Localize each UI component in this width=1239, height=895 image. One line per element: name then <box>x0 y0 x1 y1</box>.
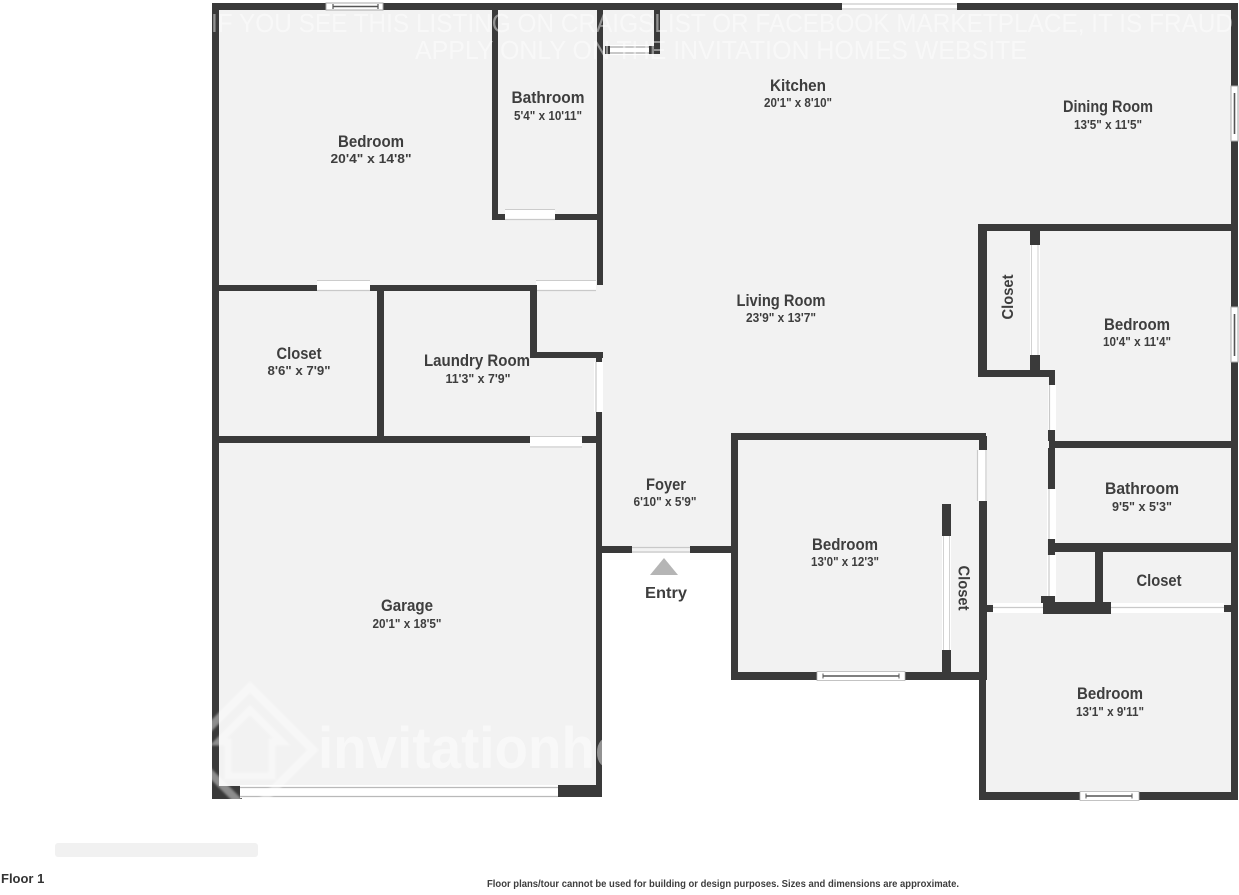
svg-text:13'1" x 9'11": 13'1" x 9'11" <box>1076 704 1144 719</box>
svg-text:20'1" x 8'10": 20'1" x 8'10" <box>764 95 832 110</box>
svg-text:APPLY ONLY ON THE INVITATION H: APPLY ONLY ON THE INVITATION HOMES WEBSI… <box>415 35 1027 65</box>
svg-text:Closet: Closet <box>277 344 322 363</box>
svg-text:Closet: Closet <box>955 566 972 612</box>
svg-text:Bedroom: Bedroom <box>1104 315 1170 334</box>
svg-text:IF YOU SEE THIS LISTING ON CRA: IF YOU SEE THIS LISTING ON CRAIGSLIST OR… <box>211 8 1233 38</box>
svg-text:13'0" x 12'3": 13'0" x 12'3" <box>811 554 879 569</box>
svg-text:Bathroom: Bathroom <box>512 88 585 107</box>
svg-text:Bedroom: Bedroom <box>1077 684 1143 703</box>
svg-text:Floor plans/tour cannot be use: Floor plans/tour cannot be used for buil… <box>487 879 959 890</box>
svg-text:20'1" x 18'5": 20'1" x 18'5" <box>373 616 442 631</box>
svg-text:Kitchen: Kitchen <box>770 76 826 95</box>
svg-text:Closet: Closet <box>1000 274 1017 320</box>
svg-text:23'9" x 13'7": 23'9" x 13'7" <box>746 310 816 325</box>
svg-text:Floor 1: Floor 1 <box>1 871 44 886</box>
svg-text:Bedroom: Bedroom <box>812 535 878 554</box>
svg-text:Closet: Closet <box>1137 571 1182 590</box>
svg-text:Bedroom: Bedroom <box>338 132 404 151</box>
svg-text:5'4" x 10'11": 5'4" x 10'11" <box>514 108 582 123</box>
svg-text:8'6" x 7'9": 8'6" x 7'9" <box>268 363 331 378</box>
svg-text:9'5" x 5'3": 9'5" x 5'3" <box>1112 499 1172 514</box>
svg-text:11'3" x 7'9": 11'3" x 7'9" <box>446 371 511 386</box>
svg-text:10'4" x 11'4": 10'4" x 11'4" <box>1103 334 1171 349</box>
svg-text:Laundry Room: Laundry Room <box>424 351 530 370</box>
svg-text:Foyer: Foyer <box>646 475 686 494</box>
svg-text:6'10" x 5'9": 6'10" x 5'9" <box>634 494 697 509</box>
svg-text:20'4" x 14'8": 20'4" x 14'8" <box>331 151 412 166</box>
svg-text:Garage: Garage <box>381 596 433 615</box>
svg-text:invitationhomes: invitationhomes <box>318 716 738 781</box>
svg-text:13'5" x 11'5": 13'5" x 11'5" <box>1074 117 1142 132</box>
svg-text:Bathroom: Bathroom <box>1105 479 1179 498</box>
svg-text:Dining Room: Dining Room <box>1063 97 1153 116</box>
svg-text:Living Room: Living Room <box>737 291 826 310</box>
svg-text:Entry: Entry <box>645 585 687 602</box>
